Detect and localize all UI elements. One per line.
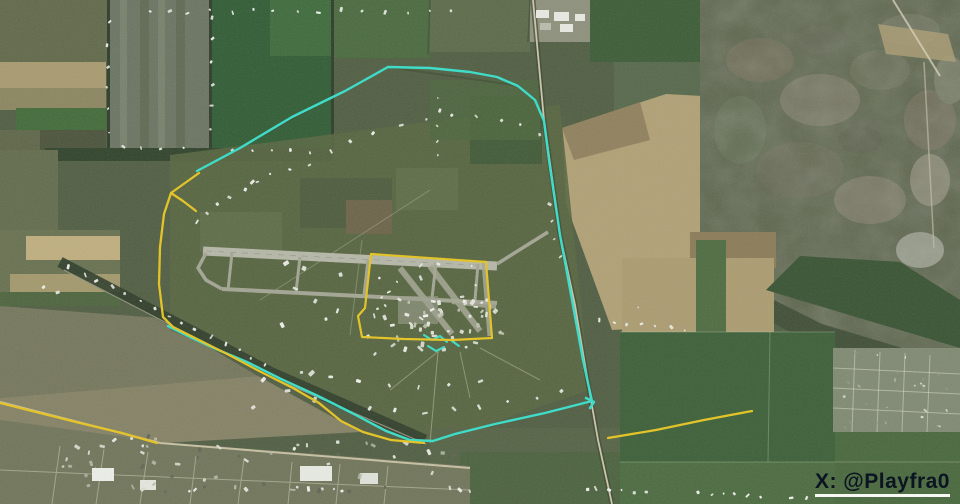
satellite-map	[0, 0, 960, 504]
watermark: X: @Playfra0	[815, 471, 950, 493]
screenshot-stage: X: @Playfra0	[0, 0, 960, 504]
watermark-text: X: @Playfra0	[815, 470, 950, 497]
film-grain-overlay	[0, 0, 960, 504]
